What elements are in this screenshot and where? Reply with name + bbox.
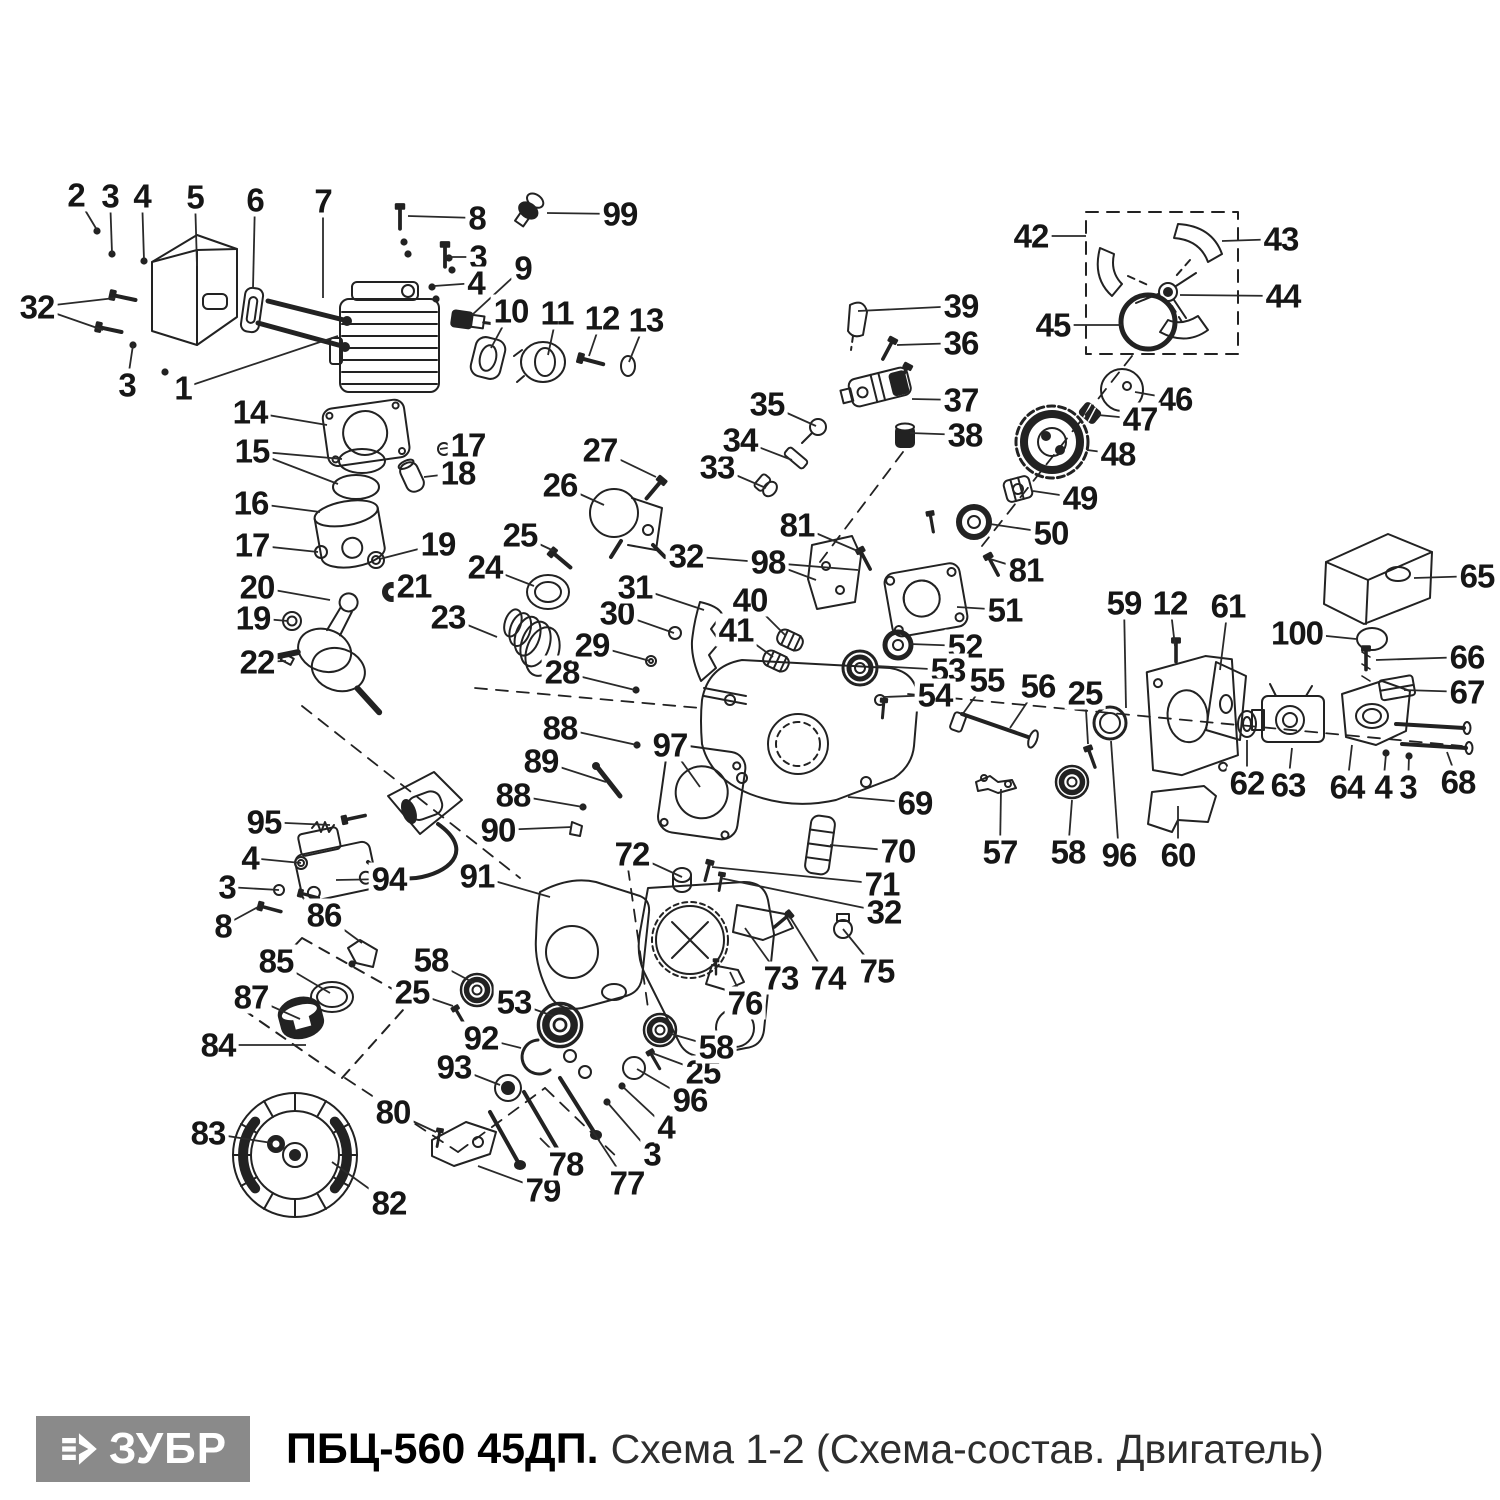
parts-diagram-page: 2345678993491011121332311415161717181921… bbox=[0, 0, 1500, 1500]
leader-lines bbox=[37, 195, 1477, 1203]
diagram-stage: 2345678993491011121332311415161717181921… bbox=[0, 0, 1500, 1390]
schema-title: ПБЦ-560 45ДП. Схема 1-2 (Схема-состав. Д… bbox=[286, 1425, 1324, 1474]
exploded-view-art bbox=[0, 0, 1500, 1390]
zubr-logo: ЗУБР bbox=[36, 1416, 250, 1482]
schema-subtitle: Схема 1-2 (Схема-состав. Двигатель) bbox=[611, 1426, 1324, 1473]
schema-model: ПБЦ-560 45ДП. bbox=[286, 1425, 599, 1474]
footer: ЗУБР ПБЦ-560 45ДП. Схема 1-2 (Схема-сост… bbox=[0, 1398, 1500, 1500]
zubr-logo-text: ЗУБР bbox=[109, 1424, 227, 1474]
zubr-logo-icon bbox=[59, 1428, 101, 1470]
